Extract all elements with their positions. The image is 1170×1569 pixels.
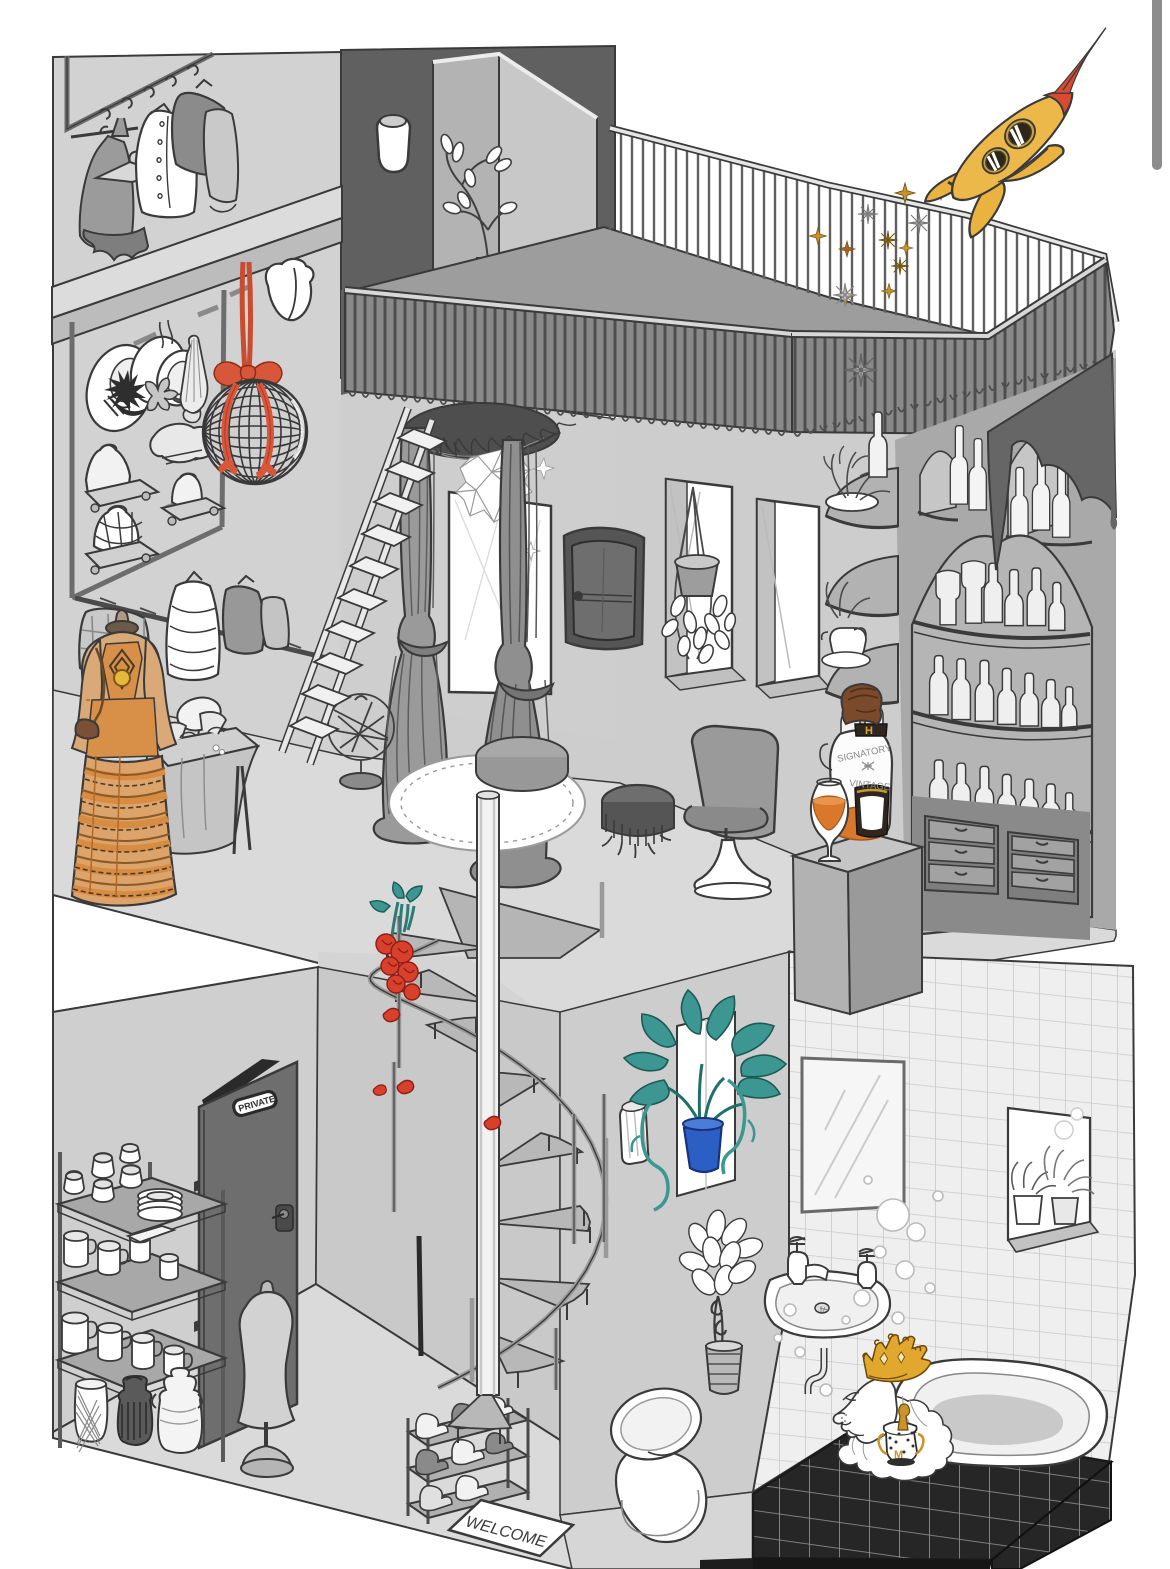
svg-text:M: M (894, 1449, 903, 1461)
svg-text:H: H (865, 725, 873, 737)
